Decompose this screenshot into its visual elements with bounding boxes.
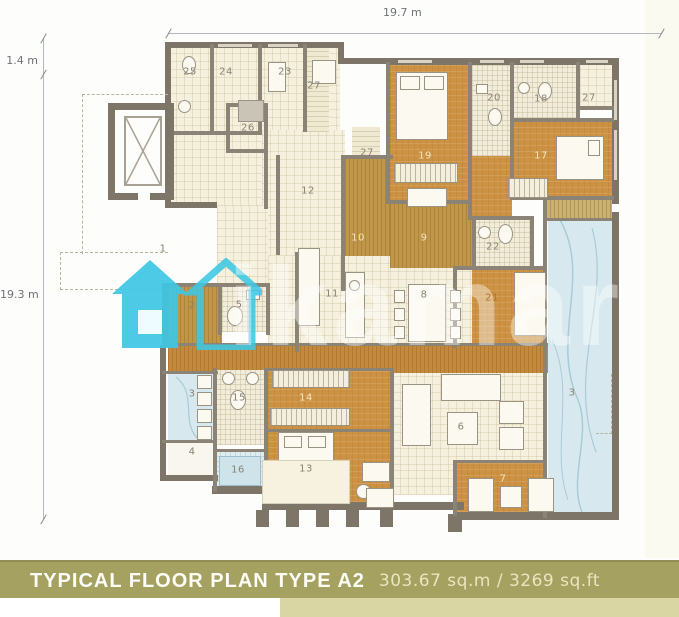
room-label-19: 19 [418, 151, 432, 162]
room-label-17: 17 [534, 151, 548, 162]
dimension-line-top [168, 33, 662, 34]
dimension-label-left-lower: 19.3 m [0, 288, 38, 301]
room-label-20: 20 [487, 93, 501, 104]
plan-area: 303.67 sq.m / 3269 sq.ft [379, 571, 600, 591]
room-label-13: 13 [299, 464, 313, 475]
room-label-2: 2 [189, 301, 196, 312]
room-label-24: 24 [219, 67, 233, 78]
room-label-27: 27 [582, 93, 596, 104]
room-label-3: 3 [569, 388, 576, 399]
room-label-25: 25 [183, 67, 197, 78]
room-label-15: 15 [232, 393, 246, 404]
room-label-8: 8 [421, 290, 428, 301]
room-label-21: 21 [485, 293, 499, 304]
room-label-4: 4 [189, 447, 196, 458]
room-label-5: 5 [236, 300, 243, 311]
room-label-11: 11 [325, 289, 339, 300]
footer-strip-right [280, 598, 679, 617]
footer-bar: TYPICAL FLOOR PLAN TYPE A2 303.67 sq.m /… [0, 560, 679, 600]
room-label-12: 12 [301, 186, 315, 197]
room-label-7: 7 [500, 474, 507, 485]
room-label-10: 10 [351, 233, 365, 244]
room-label-1: 1 [160, 244, 167, 255]
room-label-27: 27 [360, 148, 374, 159]
room-label-14: 14 [299, 393, 313, 404]
room-label-18: 18 [534, 94, 548, 105]
floor-plan-page: ikamar 123456789101112131415161718192021… [0, 0, 679, 617]
room-label-9: 9 [421, 233, 428, 244]
footer-strip-left [0, 598, 280, 617]
dimension-label-top: 19.7 m [383, 6, 422, 19]
room-label-23: 23 [278, 67, 292, 78]
room-label-22: 22 [486, 242, 500, 253]
room-label-27: 27 [307, 81, 321, 92]
plan-title: TYPICAL FLOOR PLAN TYPE A2 [30, 570, 365, 593]
dimension-line-left [43, 38, 44, 520]
room-label-16: 16 [231, 465, 245, 476]
dimension-label-left-upper: 1.4 m [0, 54, 38, 67]
room-label-26: 26 [241, 123, 255, 134]
room-labels-layer: 1234567891011121314151617181920212223242… [0, 0, 679, 558]
room-label-3: 3 [189, 389, 196, 400]
room-label-6: 6 [458, 422, 465, 433]
